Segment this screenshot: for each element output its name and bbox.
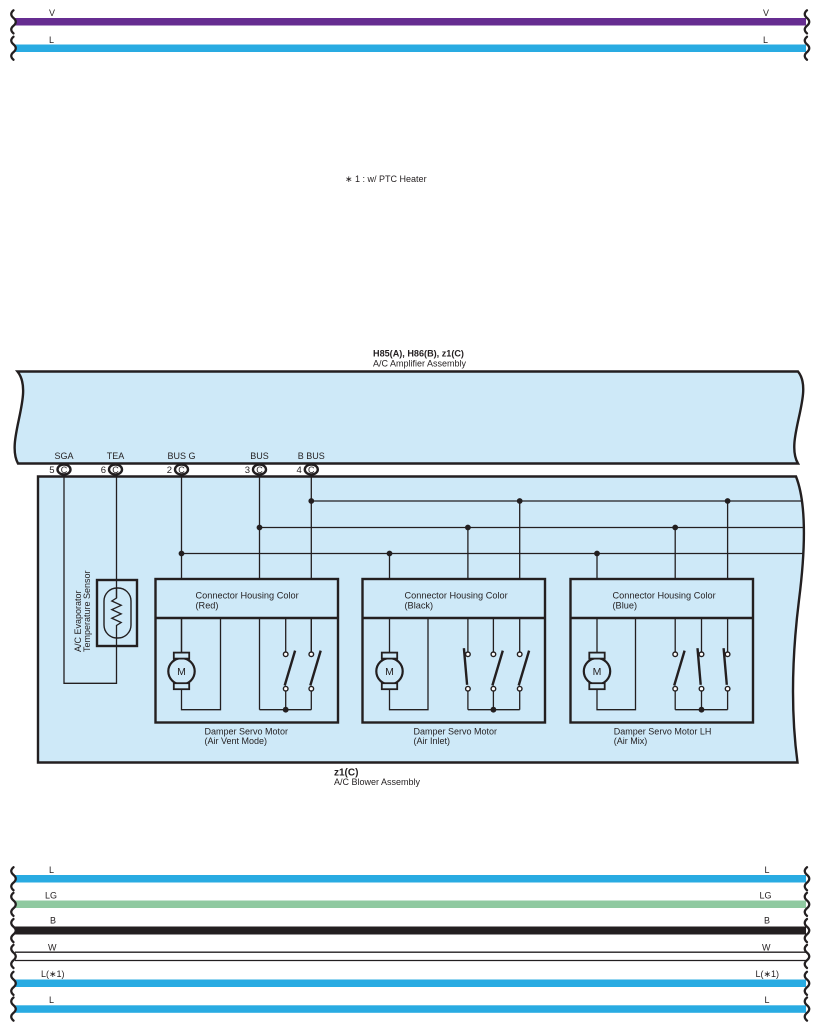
svg-text:H85(A), H86(B), z1(C): H85(A), H86(B), z1(C) (373, 349, 464, 359)
svg-text:Connector Housing Color: Connector Housing Color (196, 591, 299, 601)
svg-text:BUS: BUS (250, 451, 269, 461)
svg-text:L(∗1): L(∗1) (756, 969, 780, 979)
svg-text:Damper Servo Motor LH: Damper Servo Motor LH (614, 726, 712, 736)
svg-text:6: 6 (101, 465, 106, 476)
svg-text:LG: LG (45, 891, 57, 901)
svg-text:∗ 1 : w/ PTC Heater: ∗ 1 : w/ PTC Heater (345, 174, 427, 184)
svg-text:B: B (764, 916, 770, 926)
svg-text:C: C (256, 465, 263, 475)
svg-text:W: W (762, 942, 771, 952)
svg-text:Connector Housing Color: Connector Housing Color (613, 591, 716, 601)
svg-text:SGA: SGA (54, 451, 73, 461)
svg-text:C: C (61, 465, 68, 475)
svg-text:C: C (178, 465, 185, 475)
svg-text:BUS G: BUS G (167, 451, 195, 461)
svg-text:C: C (308, 465, 315, 475)
svg-text:A/C Amplifier Assembly: A/C Amplifier Assembly (373, 359, 467, 369)
svg-text:C: C (112, 465, 119, 475)
svg-text:L: L (765, 995, 770, 1005)
svg-text:V: V (763, 8, 769, 18)
svg-text:L: L (49, 865, 54, 875)
svg-text:(Red): (Red) (196, 601, 219, 611)
svg-text:(Black): (Black) (405, 601, 434, 611)
svg-text:Temperature Sensor: Temperature Sensor (82, 570, 92, 652)
svg-text:Damper Servo Motor: Damper Servo Motor (205, 726, 289, 736)
svg-text:V: V (49, 8, 55, 18)
svg-text:M: M (177, 666, 186, 678)
svg-text:L: L (49, 995, 54, 1005)
svg-text:2: 2 (167, 465, 172, 476)
svg-text:(Air Mix): (Air Mix) (614, 736, 648, 746)
svg-text:B: B (50, 916, 56, 926)
svg-text:M: M (385, 666, 394, 678)
svg-text:L: L (763, 35, 768, 45)
svg-text:5: 5 (49, 465, 54, 476)
svg-text:M: M (593, 666, 602, 678)
svg-text:L: L (49, 35, 54, 45)
svg-text:LG: LG (760, 891, 772, 901)
svg-text:A/C Blower Assembly: A/C Blower Assembly (334, 777, 421, 787)
svg-text:TEA: TEA (107, 451, 125, 461)
svg-text:L: L (765, 865, 770, 875)
svg-text:L(∗1): L(∗1) (41, 969, 65, 979)
svg-text:(Blue): (Blue) (613, 601, 638, 611)
svg-text:Damper Servo Motor: Damper Servo Motor (414, 726, 498, 736)
svg-text:3: 3 (245, 465, 250, 476)
svg-text:W: W (48, 942, 57, 952)
svg-text:(Air Vent Mode): (Air Vent Mode) (205, 736, 268, 746)
svg-text:(Air Inlet): (Air Inlet) (414, 736, 451, 746)
svg-text:4: 4 (297, 465, 302, 476)
svg-text:B BUS: B BUS (298, 451, 325, 461)
svg-text:Connector Housing Color: Connector Housing Color (405, 591, 508, 601)
